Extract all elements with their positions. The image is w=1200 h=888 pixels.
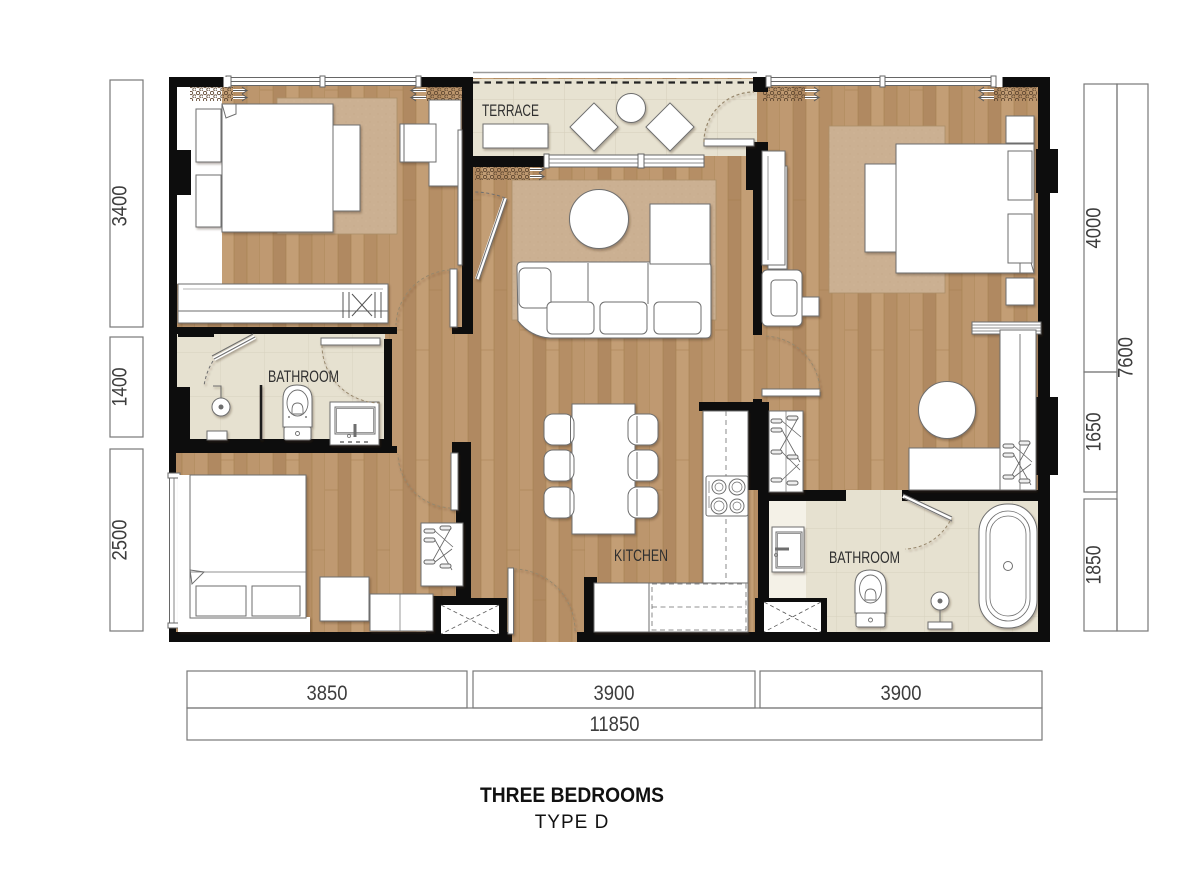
svg-text:TERRACE: TERRACE [482, 101, 539, 120]
svg-text:BATHROOM: BATHROOM [829, 548, 900, 567]
svg-text:2500: 2500 [109, 520, 132, 561]
svg-text:4000: 4000 [1083, 208, 1106, 249]
svg-text:3900: 3900 [594, 682, 635, 705]
svg-text:THREE BEDROOMS: THREE BEDROOMS [480, 784, 664, 807]
svg-text:3400: 3400 [109, 186, 132, 227]
svg-text:KITCHEN: KITCHEN [614, 546, 668, 565]
svg-text:1850: 1850 [1083, 546, 1106, 585]
svg-text:3850: 3850 [307, 682, 348, 705]
svg-text:11850: 11850 [590, 713, 640, 736]
svg-text:7600: 7600 [1115, 337, 1138, 378]
svg-text:TYPE D: TYPE D [535, 812, 610, 833]
svg-text:1400: 1400 [109, 368, 132, 407]
svg-text:BATHROOM: BATHROOM [268, 367, 339, 386]
svg-text:1650: 1650 [1083, 413, 1106, 452]
svg-text:3900: 3900 [881, 682, 922, 705]
